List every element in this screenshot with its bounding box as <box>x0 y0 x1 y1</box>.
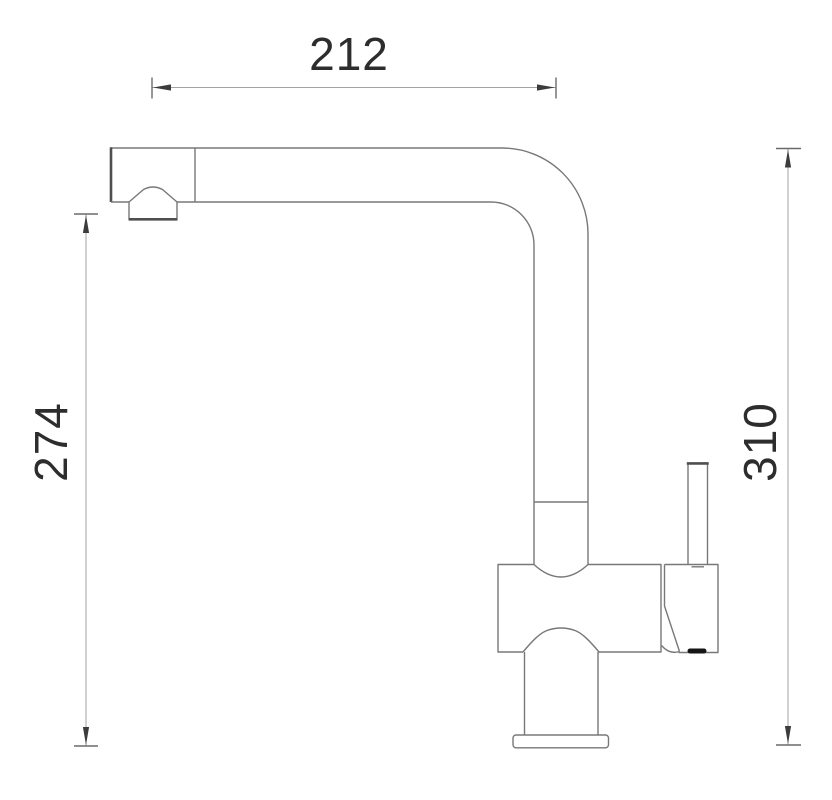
dimension-outlet-height: 274 <box>25 214 98 746</box>
dim-left-arrow-down <box>83 727 89 745</box>
dim-right-arrow-up <box>785 150 791 168</box>
faucet-technical-drawing: 212 274 310 <box>0 0 832 800</box>
dim-left-arrow-up <box>83 215 89 233</box>
dim-left-label: 274 <box>25 402 77 482</box>
handle-seal-mark <box>688 649 707 654</box>
dimension-total-height: 310 <box>734 149 801 746</box>
aerator-outlet <box>129 187 177 219</box>
mixer-body <box>498 565 661 653</box>
faucet-outline <box>111 147 718 748</box>
dim-top-arrow-right <box>537 84 555 90</box>
dim-right-label: 310 <box>734 402 786 482</box>
base-column <box>525 652 599 735</box>
base-plate <box>513 735 609 748</box>
dim-top-label: 212 <box>309 28 389 80</box>
dim-right-arrow-down <box>785 726 791 744</box>
dimension-spout-reach: 212 <box>152 28 556 99</box>
dim-top-arrow-left <box>153 84 171 90</box>
handle-base <box>662 565 719 653</box>
handle-lever <box>688 463 708 565</box>
technical-drawing-canvas: 212 274 310 <box>0 0 832 800</box>
spout-inner-edge <box>111 202 534 565</box>
body-column-arch <box>523 628 599 652</box>
